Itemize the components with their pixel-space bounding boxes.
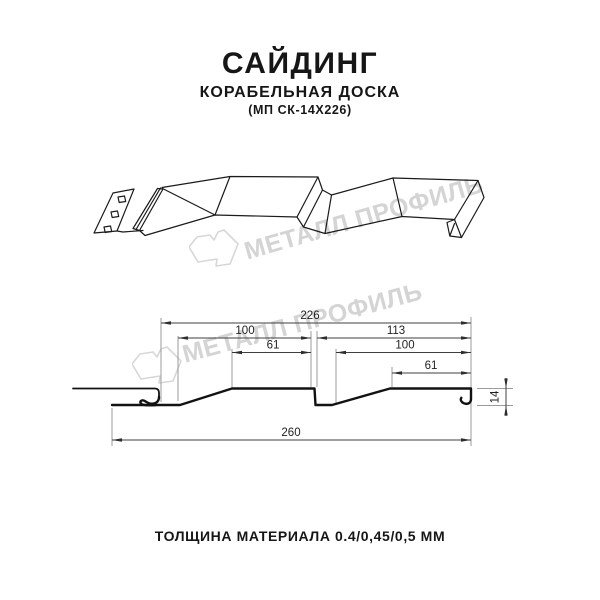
- sheet-end-face: [455, 181, 485, 238]
- dim-label-113: 113: [387, 325, 405, 337]
- dim-label-226: 226: [300, 310, 319, 322]
- product-subtitle: КОРАБЕЛЬНАЯ ДОСКА: [0, 84, 600, 102]
- dim-label-100-left: 100: [235, 325, 254, 337]
- dim-label-260: 260: [281, 427, 300, 439]
- sheet-end-hook: [447, 220, 462, 238]
- nail-strip-holes: [104, 196, 126, 233]
- sheet-near-edge: [140, 215, 455, 236]
- adjacent-panel-edge: [73, 389, 159, 398]
- product-drawing-page: САЙДИНГ КОРАБЕЛЬНАЯ ДОСКА (МП СК-14Х226)…: [0, 0, 600, 600]
- profile-outline: [112, 389, 471, 406]
- material-thickness-note: ТОЛЩИНА МАТЕРИАЛА 0.4/0,45/0,5 ММ: [0, 528, 600, 544]
- dim-label-100-right: 100: [395, 340, 414, 352]
- dim-label-61-left: 61: [267, 340, 280, 352]
- dim-label-14: 14: [490, 390, 502, 403]
- dim-label-61-right: 61: [425, 360, 438, 372]
- sheet-far-edge: [162, 177, 478, 196]
- page-title: САЙДИНГ: [0, 47, 600, 81]
- lock-web-fold: [117, 188, 163, 232]
- product-code: (МП СК-14Х226): [0, 103, 600, 117]
- extension-lines: [112, 317, 513, 446]
- profile-cross-section-drawing: 226 100 113 61 100 61 260 14: [30, 295, 560, 455]
- dimension-lines: [112, 323, 506, 440]
- profile-3d-drawing: [85, 158, 505, 250]
